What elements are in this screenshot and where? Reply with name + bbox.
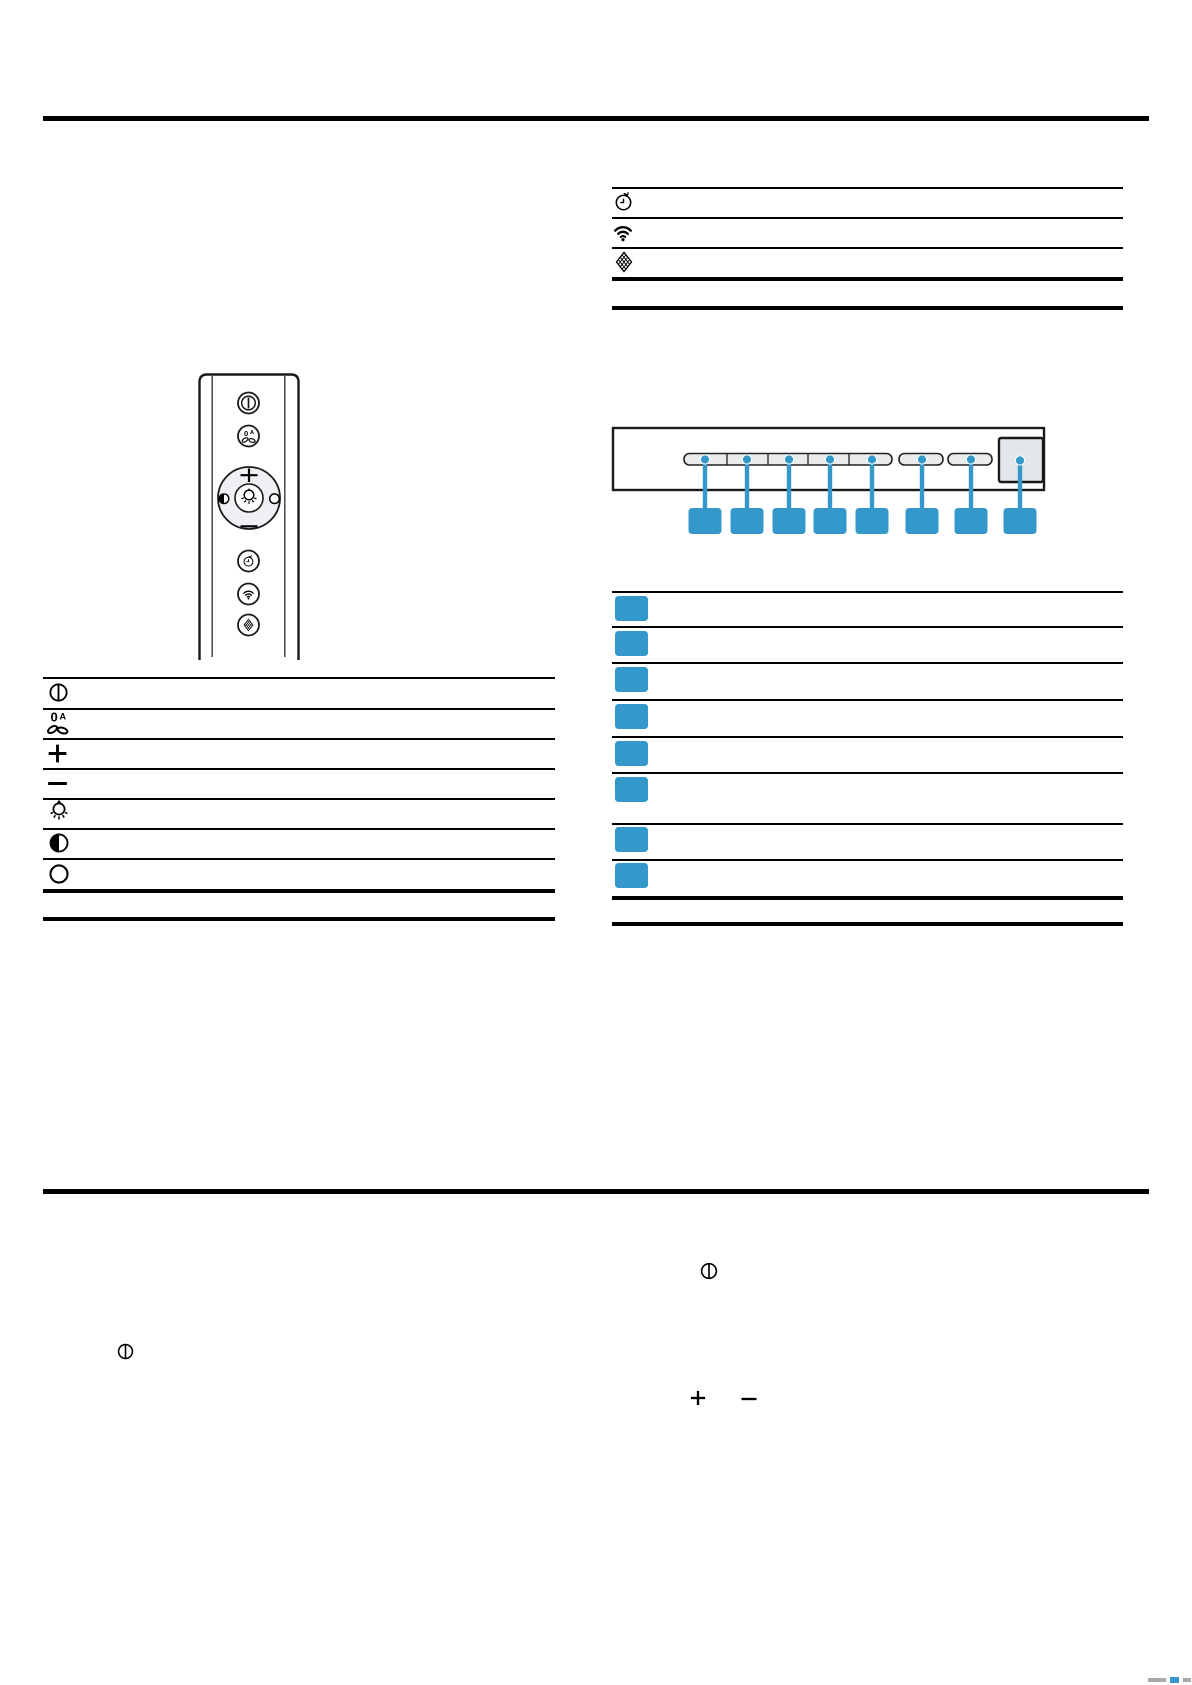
power-icon <box>700 1262 718 1280</box>
plus-icon <box>45 741 70 766</box>
callout-squares <box>689 508 1037 534</box>
table-row <box>45 771 70 796</box>
remote-control-figure: 0 A <box>194 370 304 660</box>
table-row <box>47 800 71 824</box>
contrast-icon <box>48 832 70 854</box>
remote-speed-light-pad <box>218 467 280 529</box>
plus-icon <box>688 1388 708 1408</box>
callout-square <box>615 667 648 692</box>
power-icon <box>117 1343 134 1360</box>
table-row <box>613 191 634 212</box>
callout-square <box>615 827 648 852</box>
wifi-icon <box>612 221 634 243</box>
svg-text:A: A <box>250 430 254 436</box>
remote-wifi-button <box>238 584 259 605</box>
table-row <box>612 221 634 243</box>
callout-square <box>615 777 648 802</box>
table-row <box>614 251 634 273</box>
contrast-icon <box>219 494 229 504</box>
mesh-filter-icon <box>614 251 634 273</box>
circle-icon <box>48 863 70 885</box>
callout-square <box>615 596 648 621</box>
power-icon <box>48 682 69 703</box>
fan-auto-icon <box>45 710 73 736</box>
footer-fragment <box>1183 1678 1191 1682</box>
section-divider-mid <box>43 1189 1149 1194</box>
remote-fan-auto-button: 0 A <box>238 426 259 447</box>
control-panel-figure <box>600 420 1060 542</box>
light-icon <box>47 800 71 824</box>
callout-square <box>615 863 648 888</box>
table-row <box>45 710 73 736</box>
callout-square <box>615 631 648 656</box>
svg-text:0: 0 <box>244 429 248 438</box>
circle-icon <box>270 494 280 504</box>
minus-icon <box>739 1389 759 1409</box>
remote-mesh-button <box>238 615 259 636</box>
table-row <box>45 741 70 766</box>
manual-page: 0 A <box>0 0 1192 1685</box>
table-row <box>48 863 70 885</box>
remote-power-button <box>238 393 259 414</box>
timer-icon <box>613 191 634 212</box>
section-divider-top <box>43 116 1149 121</box>
footer-fragment <box>1170 1677 1179 1683</box>
callout-square <box>615 704 648 729</box>
table-row <box>48 832 70 854</box>
footer-fragment <box>1148 1678 1166 1682</box>
table-row <box>48 682 69 703</box>
remote-timer-button <box>238 551 259 572</box>
callout-square <box>615 741 648 766</box>
minus-icon <box>45 771 70 796</box>
